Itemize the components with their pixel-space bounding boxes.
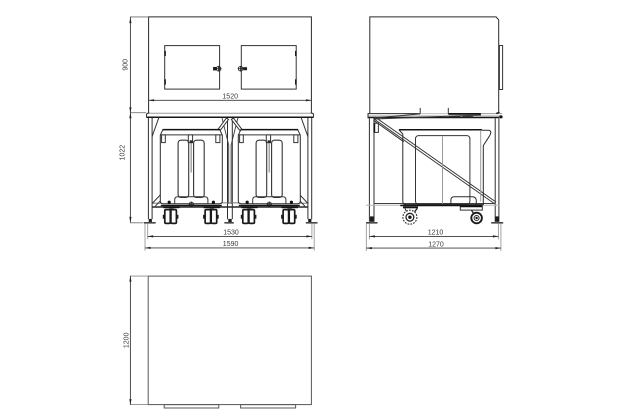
svg-text:1520: 1520	[222, 94, 238, 101]
svg-text:1210: 1210	[428, 230, 444, 237]
svg-text:1530: 1530	[223, 229, 239, 236]
svg-text:1200: 1200	[124, 332, 131, 348]
svg-text:1590: 1590	[223, 241, 239, 248]
svg-text:900: 900	[123, 59, 130, 71]
svg-text:1022: 1022	[120, 145, 127, 161]
svg-text:1270: 1270	[428, 241, 444, 248]
